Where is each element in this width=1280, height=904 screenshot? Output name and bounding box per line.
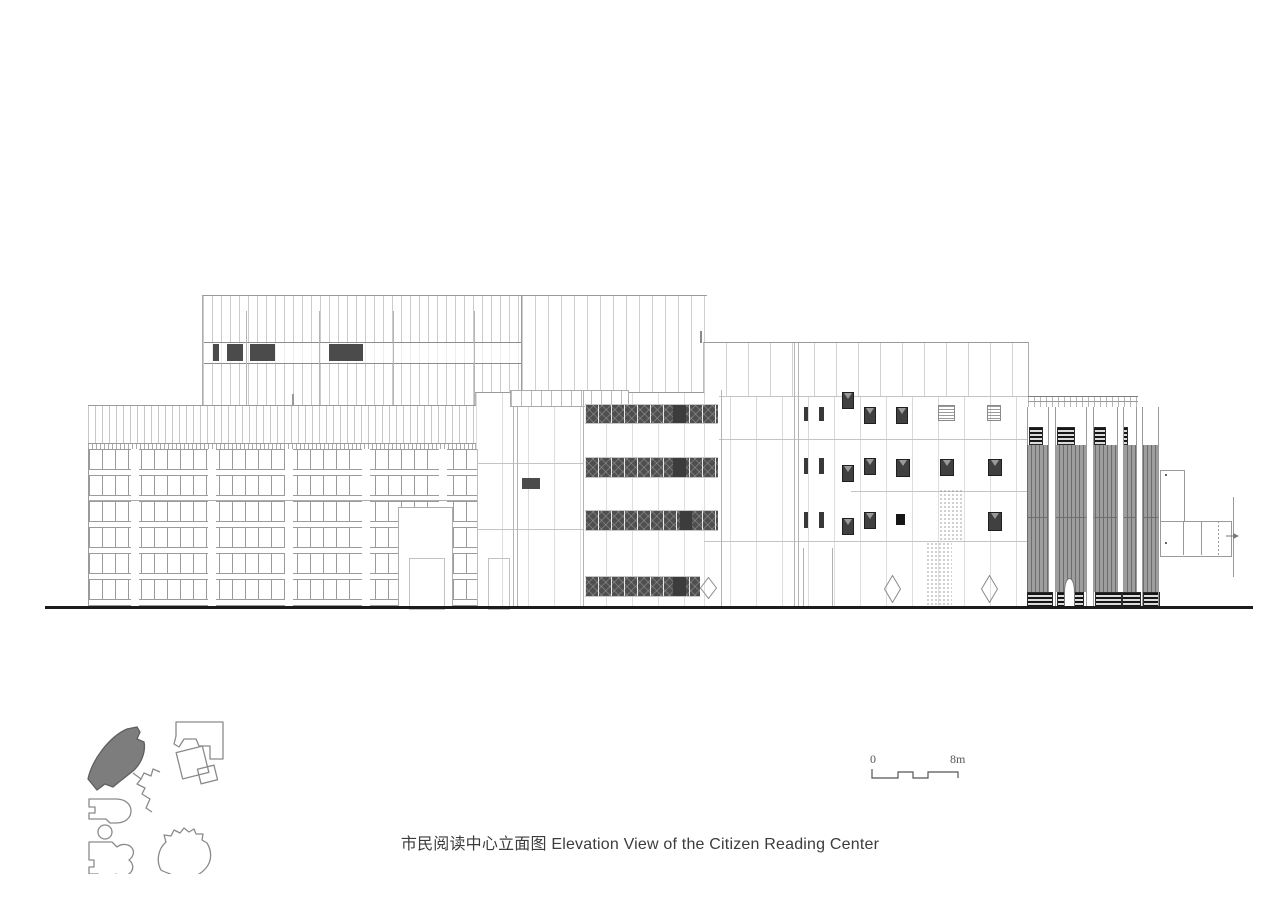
louver-solid-panel	[673, 405, 686, 423]
tower-window	[213, 344, 219, 361]
striped-window	[1057, 427, 1075, 445]
right-facade	[703, 342, 1029, 609]
perforated-panel	[939, 489, 962, 541]
diamond-mullion	[884, 575, 901, 608]
striped-window	[1094, 427, 1106, 445]
v-window	[896, 459, 910, 477]
roof-joint-tick	[292, 394, 294, 405]
annex-dot	[1165, 474, 1167, 476]
slot-window	[804, 512, 808, 528]
v-window	[988, 459, 1002, 476]
facade-joint	[393, 311, 394, 408]
block-edge	[1158, 407, 1159, 608]
door-frame	[803, 548, 833, 607]
scale-zero-label: 0	[870, 752, 876, 767]
elevation-sheet: 0 8m 市民阅读中心立面图 Elevation View of the Cit…	[0, 0, 1280, 904]
louver-solid-panel	[680, 511, 692, 530]
facade-joint	[246, 311, 247, 408]
site-building-square	[176, 746, 209, 779]
pilaster	[1086, 407, 1094, 608]
facade-joint	[719, 439, 1028, 440]
pilaster	[1117, 407, 1124, 608]
site-building-l-shape	[174, 722, 223, 759]
left-parapet-band	[88, 405, 476, 444]
direction-arrow-icon	[1226, 528, 1240, 546]
v-window	[864, 407, 876, 424]
striped-window	[1029, 427, 1043, 445]
facade-joint	[89, 500, 477, 501]
facade-joint	[513, 393, 518, 609]
facade-joint	[476, 463, 584, 464]
facade-joint	[704, 541, 1028, 542]
annex-box	[1160, 470, 1185, 523]
tower-window	[250, 344, 275, 361]
annex-divider	[1201, 521, 1202, 555]
ground-line	[45, 606, 1253, 609]
scale-bar: 0 8m	[866, 752, 970, 786]
tower-window	[227, 344, 243, 361]
annex-dot	[1165, 542, 1167, 544]
louver-strip	[585, 404, 718, 424]
site-highlight-reading-center	[88, 727, 144, 790]
louver-solid-panel	[673, 577, 686, 596]
tower-window	[329, 344, 363, 361]
diamond-mullion	[700, 577, 717, 604]
facade-joint	[719, 396, 1028, 397]
v-window	[842, 518, 854, 535]
louver-strip	[585, 457, 718, 478]
facade-joint	[794, 343, 799, 609]
annex-row	[1160, 521, 1232, 557]
v-window	[940, 459, 954, 476]
pilaster	[1048, 407, 1056, 608]
louver-strip	[585, 576, 700, 597]
v-window	[842, 465, 854, 482]
annex-divider	[1183, 521, 1184, 555]
scale-end-label: 8m	[950, 752, 965, 767]
louver-strip	[585, 510, 718, 531]
v-window	[988, 512, 1002, 531]
site-corridor	[141, 769, 160, 779]
v-window	[896, 407, 908, 424]
site-building-round-end	[89, 799, 131, 823]
louvered-vent	[938, 405, 955, 421]
v-window	[842, 392, 854, 409]
arched-door	[1064, 578, 1075, 609]
door-outline	[409, 558, 445, 610]
small-dark-window	[522, 478, 540, 489]
door-outline	[488, 558, 510, 610]
louver-solid-panel	[673, 458, 686, 477]
facade-joint	[476, 529, 584, 530]
scale-bar-graphic	[866, 768, 970, 782]
v-window	[864, 512, 876, 529]
annex-dotted-line	[1218, 521, 1219, 555]
slot-window	[804, 407, 808, 421]
v-window	[864, 458, 876, 475]
diamond-mullion	[981, 575, 998, 608]
pilaster	[1136, 407, 1143, 608]
solid-window	[896, 514, 905, 525]
slot-window	[804, 458, 808, 474]
perforated-panel	[926, 542, 952, 605]
slot-window	[819, 458, 824, 474]
site-corridor	[133, 773, 152, 812]
louvered-vent	[987, 405, 1001, 421]
facade-joint	[319, 311, 320, 408]
slot-window	[819, 512, 824, 528]
roof-joint-tick	[700, 331, 702, 343]
drawing-caption: 市民阅读中心立面图 Elevation View of the Citizen …	[0, 830, 1280, 854]
slot-window	[819, 407, 824, 421]
gridded-window-facade	[88, 449, 478, 608]
facade-texture	[704, 343, 1028, 396]
